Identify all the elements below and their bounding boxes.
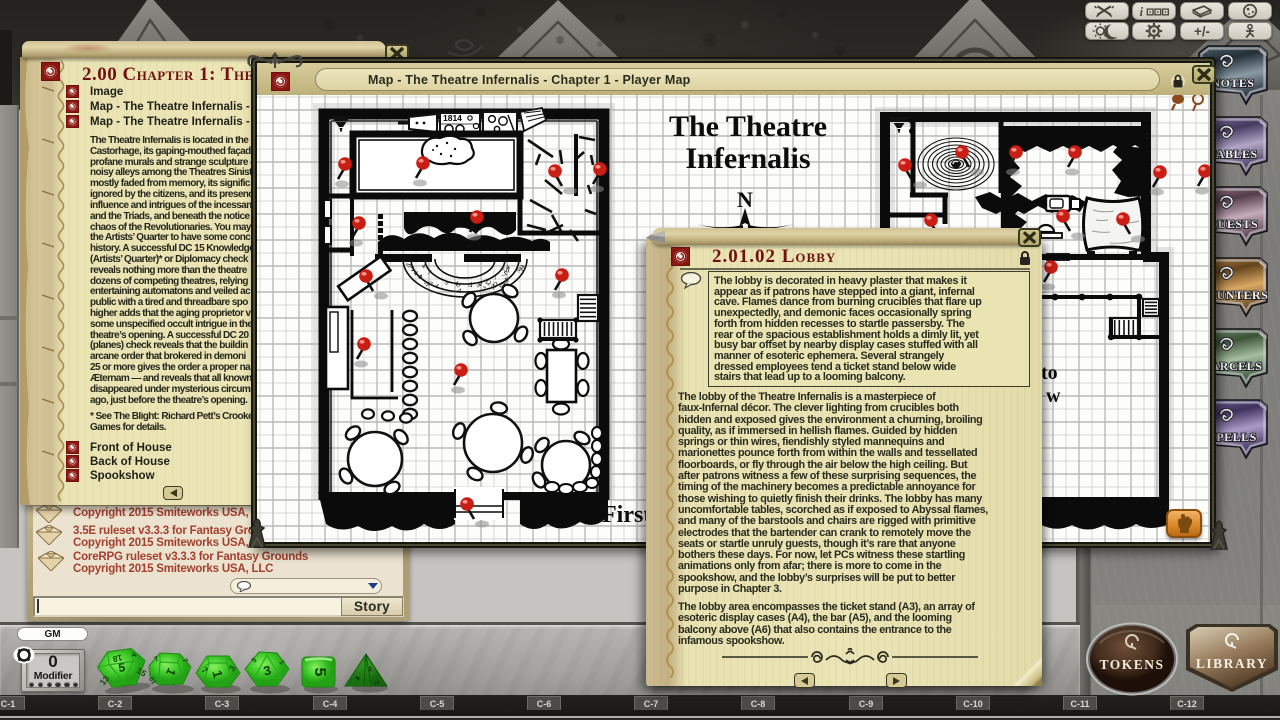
svg-text:SPELLS: SPELLS <box>1209 430 1257 444</box>
svg-text:First: First <box>602 502 651 528</box>
svg-text:LIBRARY: LIBRARY <box>1196 656 1268 671</box>
svg-text:i: i <box>1140 5 1144 19</box>
svg-text:1814: 1814 <box>443 113 462 123</box>
svg-text:The Theatre: The Theatre <box>669 110 827 143</box>
svg-text:Infernalis: Infernalis <box>685 142 810 175</box>
svg-text:to: to <box>1041 362 1058 384</box>
svg-text:NOTES: NOTES <box>1211 76 1254 90</box>
svg-text:TOKENS: TOKENS <box>1099 657 1164 672</box>
svg-text:w: w <box>1046 385 1061 407</box>
svg-text:+/-: +/- <box>1194 24 1210 39</box>
svg-text:5: 5 <box>311 668 328 677</box>
